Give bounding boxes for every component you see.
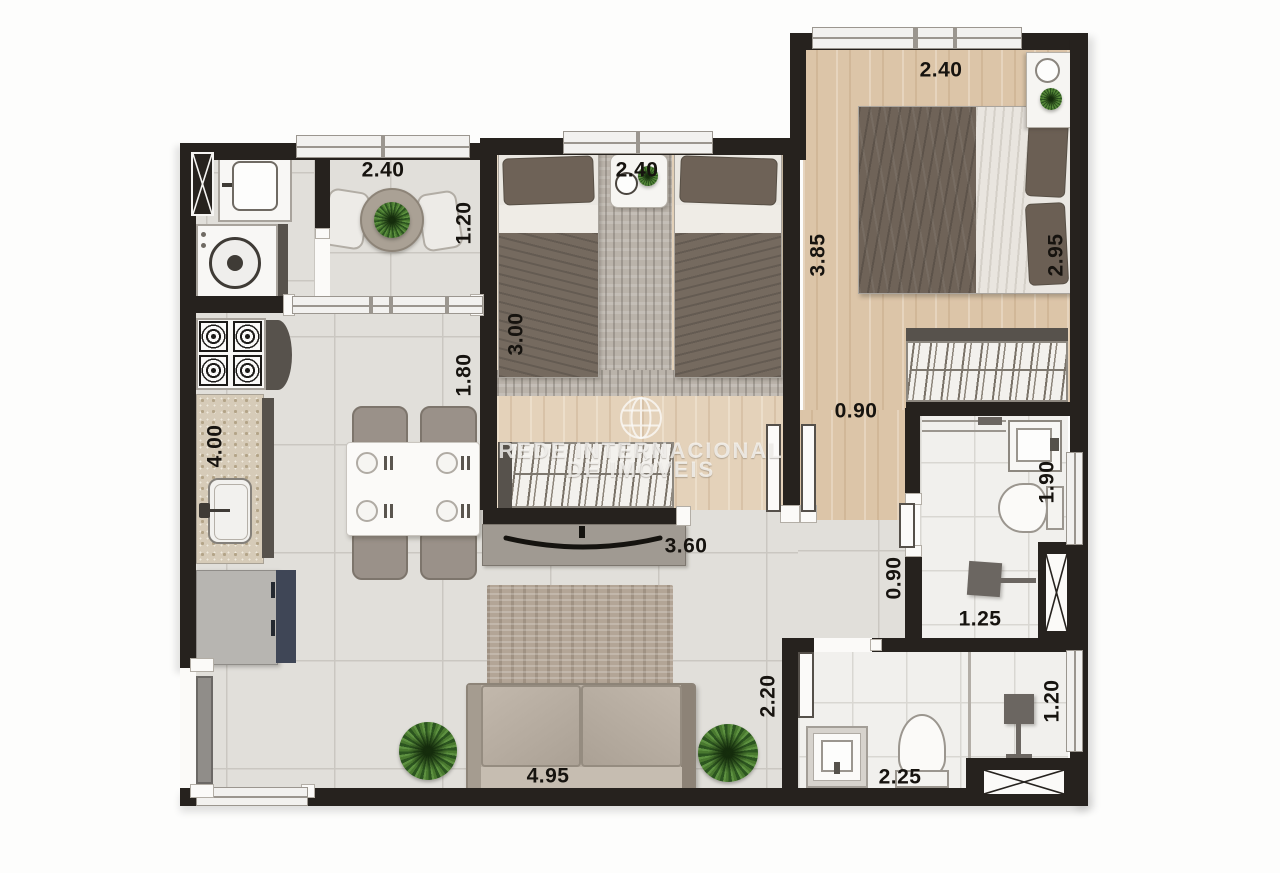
floor-plan: REDE INTERNACIONAL DE IMÓVEIS 2.401.202.…: [0, 0, 1280, 873]
dimension-label-kitchen-counter: 4.00: [205, 425, 226, 468]
bedroom2-window: [563, 131, 713, 154]
dimension-label-master-depth-right: 2.95: [1046, 234, 1067, 277]
stove-burner: [199, 355, 228, 386]
bath2-faucet-icon: [834, 762, 840, 774]
tv-icon: [498, 532, 668, 558]
shaft-bathrooms: [1044, 552, 1069, 633]
shaft-x-icon: [193, 154, 212, 214]
wall-cap: [315, 228, 330, 239]
master-wardrobe-rail: [910, 369, 1064, 371]
entry-opening: [180, 668, 196, 788]
wall-laundry-bottom: [180, 296, 292, 313]
dimension-label-bath1-shower-width: 1.25: [959, 609, 1002, 630]
bath1-shower-head: [967, 561, 1002, 597]
bath2-shower-stem: [1016, 724, 1021, 758]
plate: [356, 500, 378, 522]
watermark-globe-icon: [619, 396, 663, 440]
master-hall-door-leaf: [801, 424, 816, 512]
kitchen-faucet-stem: [210, 509, 230, 512]
laundry-faucet-icon: [222, 183, 232, 187]
bath2-shower-glass: [968, 650, 971, 762]
entry-door-frame: [190, 784, 214, 798]
balcony-sliding-door: [292, 296, 483, 314]
cutlery-icon: [384, 504, 387, 518]
bath1-faucet-icon: [1050, 438, 1059, 451]
dimension-label-bath2-width: 2.25: [879, 767, 922, 788]
cutlery-icon: [390, 504, 393, 518]
plate: [436, 500, 458, 522]
cutlery-icon: [390, 456, 393, 470]
master-bed: [858, 106, 1072, 294]
dimension-label-balcony-width: 2.40: [362, 160, 405, 181]
entry-door-leaf: [196, 676, 213, 784]
living-plant-left: [399, 722, 457, 780]
wall-bottom: [180, 788, 1088, 806]
wall-cap: [870, 639, 882, 651]
master-nightstand-plant: [1040, 88, 1062, 110]
dimension-label-balcony-depth: 1.20: [454, 202, 475, 245]
bath2-shower-head: [1004, 694, 1034, 724]
wall-bedroom2-right: [783, 140, 800, 520]
fridge-edge: [276, 570, 296, 663]
dimension-label-master-depth-left: 3.85: [808, 234, 829, 277]
bath2-window: [1066, 650, 1083, 752]
living-plant-right: [698, 724, 758, 782]
dimension-label-bath1-depth: 1.90: [1037, 461, 1058, 504]
stove-burner: [233, 321, 262, 352]
shaft-x-icon: [984, 770, 1064, 794]
wall-bedroom2-left: [480, 140, 497, 510]
cutlery-icon: [461, 504, 464, 518]
sofa-arm-left: [468, 685, 481, 790]
cutlery-icon: [467, 456, 470, 470]
washer-drum-center: [227, 255, 243, 271]
laundry-tank-basin: [232, 161, 278, 211]
dimension-label-living-width: 4.95: [527, 766, 570, 787]
laundry-door-opening: [315, 236, 330, 298]
master-lamp-icon: [1035, 58, 1060, 83]
master-duvet: [859, 107, 976, 293]
bath1-window: [1066, 452, 1083, 545]
sofa-arm-right: [681, 685, 694, 790]
shaft-laundry: [191, 152, 214, 216]
plate: [356, 452, 378, 474]
twin-bed-right: [674, 152, 782, 378]
washer-knob: [201, 232, 206, 237]
kitchen-counter-edge: [262, 398, 274, 558]
plate: [436, 452, 458, 474]
dimension-label-master-hall-width: 0.90: [835, 401, 878, 422]
bath1-sink-basin: [1016, 428, 1052, 462]
master-wardrobe: [906, 341, 1068, 402]
dimension-label-bedroom2-depth: 3.00: [506, 313, 527, 356]
bath1-shower-stem: [1000, 578, 1036, 583]
wall-bath1-left-upper: [905, 408, 920, 503]
dimension-label-tv-wall: 3.60: [665, 536, 708, 557]
fridge-handle: [271, 582, 275, 598]
dimension-label-living-depth: 2.20: [758, 675, 779, 718]
balcony-table-plant: [374, 202, 410, 238]
cutlery-icon: [467, 504, 470, 518]
shaft-x-icon: [1046, 554, 1067, 631]
cutlery-icon: [384, 456, 387, 470]
wall-bedroom2-bottom: [483, 508, 690, 524]
living-rug: [487, 585, 673, 685]
balcony-window: [296, 135, 470, 158]
fridge: [196, 570, 278, 665]
dimension-label-master-width: 2.40: [920, 60, 963, 81]
stove-burner: [199, 321, 228, 352]
bath2-door-leaf: [798, 652, 814, 718]
dimension-label-bedroom2-width: 2.40: [616, 160, 659, 181]
fridge-handle: [271, 620, 275, 636]
sofa-cushion: [581, 685, 682, 767]
wall-left: [180, 143, 196, 670]
bath1-door-leaf: [899, 503, 915, 548]
master-sheet: [976, 107, 1031, 293]
sofa-cushion: [481, 685, 581, 767]
wall-bath1-left-lower: [905, 545, 922, 648]
washer-knob: [201, 243, 206, 248]
wall-master-bath-divider: [906, 402, 1070, 416]
stove-burner: [233, 355, 262, 386]
cutlery-icon: [461, 456, 464, 470]
dimension-label-hall2-width: 0.90: [884, 557, 905, 600]
shaft-bottom-right: [982, 768, 1066, 796]
wall-cap: [780, 505, 800, 523]
entry-door-frame: [190, 658, 214, 672]
sofa: [466, 683, 696, 792]
watermark-line2: DE IMÓVEIS: [567, 457, 715, 483]
bath1-shower-arm-icon: [978, 417, 1002, 425]
dimension-label-bath2-shower-depth: 1.20: [1042, 680, 1063, 723]
kitchen-faucet-icon: [199, 503, 210, 518]
dimension-label-kitchen-passage: 1.80: [454, 354, 475, 397]
master-wardrobe-edge: [906, 328, 1068, 341]
master-window: [812, 27, 1022, 49]
wall-cap: [676, 506, 691, 526]
wall-living-bath2-divider: [782, 638, 798, 790]
bath2-door-opening: [814, 638, 872, 652]
washing-machine-edge: [278, 224, 288, 302]
kitchen-sink-inner: [214, 484, 248, 540]
sofa-back: [481, 767, 682, 790]
